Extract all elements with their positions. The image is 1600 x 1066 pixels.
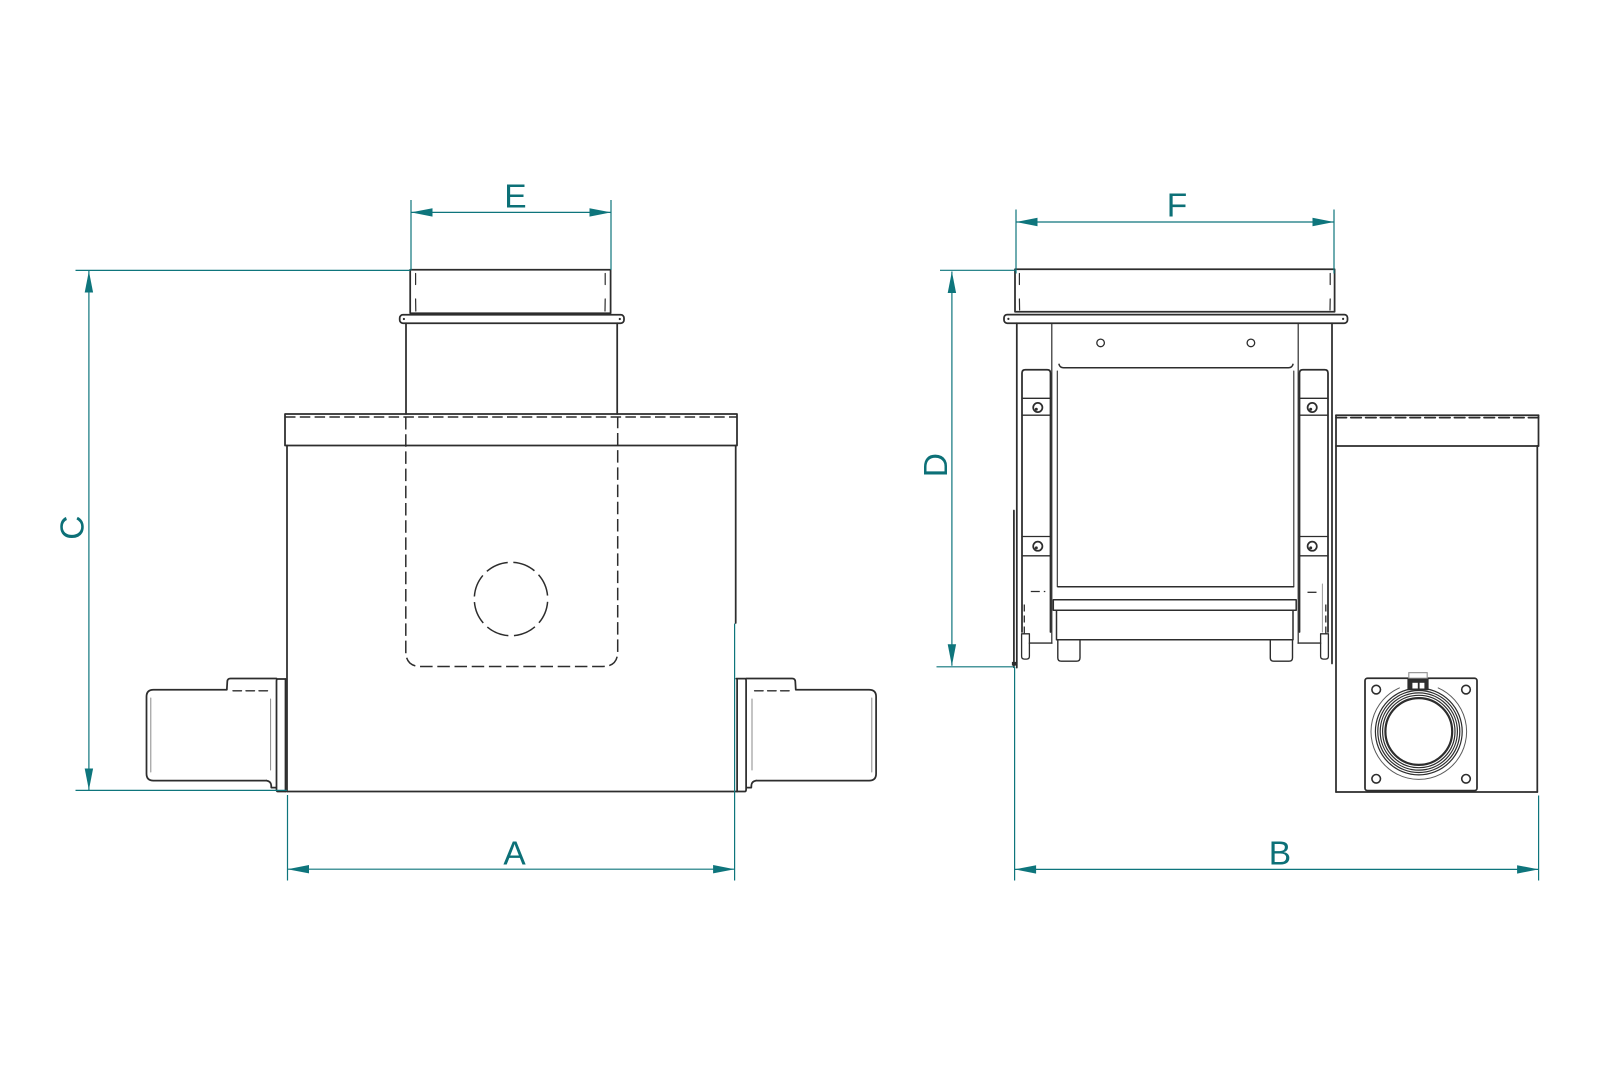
svg-text:A: A	[503, 835, 526, 872]
svg-text:D: D	[918, 453, 955, 477]
svg-text:C: C	[55, 516, 92, 540]
svg-text:E: E	[504, 178, 526, 215]
svg-text:F: F	[1167, 188, 1187, 225]
svg-text:B: B	[1269, 836, 1291, 873]
